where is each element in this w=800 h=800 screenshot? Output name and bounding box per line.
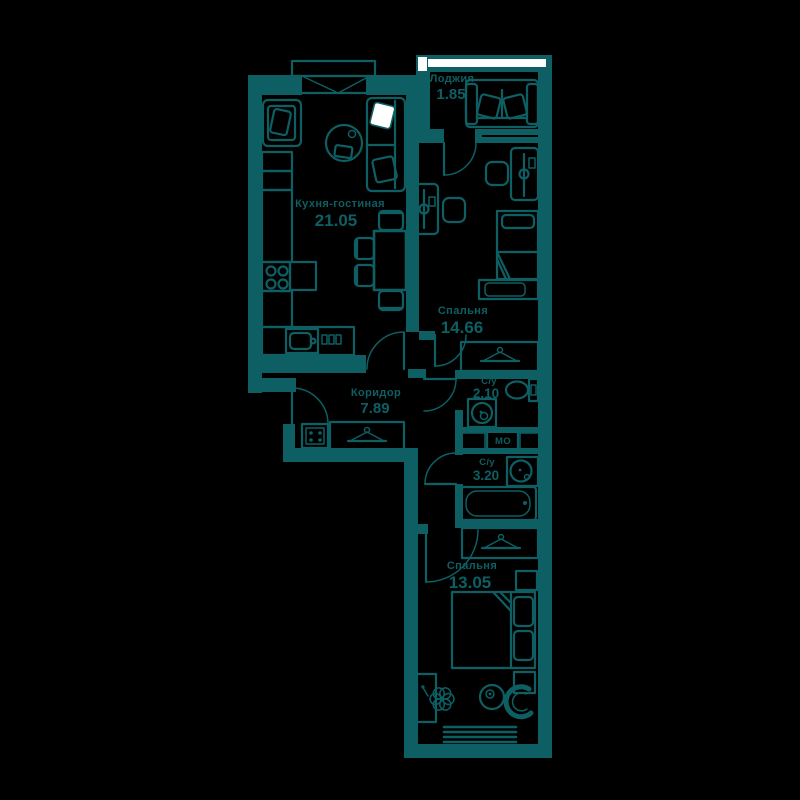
room-label: Спальня (447, 560, 497, 572)
washing-machine-icon (468, 399, 496, 427)
wardrobe-icon (511, 148, 538, 200)
kitchen-window (292, 61, 375, 93)
room-label: Лоджия (430, 73, 475, 85)
coffee-table-icon (326, 125, 362, 161)
chair-icon (486, 162, 508, 185)
washing-niche-label: МО (495, 436, 511, 447)
room-area: 13.05 (449, 573, 492, 592)
armchair-icon (263, 100, 301, 146)
room-area: 14.66 (441, 318, 484, 337)
room-bathroom-1: С/у 2.10 (468, 376, 538, 427)
dining-table-icon (374, 231, 406, 290)
nightstand-icon (516, 571, 537, 590)
room-corridor: Коридор 7.89 (302, 387, 404, 450)
bed-bench-icon (479, 280, 538, 299)
room-area: 21.05 (315, 211, 358, 230)
room-bedroom-2: Спальня 13.05 (417, 528, 538, 742)
fridge-icon (262, 152, 292, 190)
room-label: Кухня-гостиная (295, 198, 385, 210)
room-area: 3.20 (473, 468, 499, 483)
sink-icon (507, 457, 538, 486)
bathroom-1-door (424, 379, 456, 411)
room-kitchen-living: Кухня-гостиная 21.05 (262, 98, 406, 355)
entrance-door (292, 388, 328, 424)
armchair-icon (506, 687, 531, 717)
floor-plan: Лоджия 1.85 (0, 0, 800, 800)
chair-icon (443, 198, 465, 222)
kitchen-door (367, 332, 404, 369)
room-bathroom-2: С/у 3.20 (461, 457, 538, 520)
window-sill-lines (444, 727, 516, 742)
wardrobe-hanger-icon (330, 422, 404, 450)
bathroom-2-door (425, 453, 456, 484)
sofa-icon (466, 80, 538, 127)
wardrobe-hanger-icon (462, 528, 538, 558)
dining-chairs-icon (355, 211, 403, 310)
room-area: 1.85 (436, 86, 465, 103)
room-loggia: Лоджия 1.85 (430, 73, 538, 127)
stove-icon (262, 262, 290, 291)
wardrobe-hanger-icon (461, 342, 538, 371)
shoe-cabinet-icon (302, 424, 328, 448)
sofa-icon (367, 98, 405, 191)
toilet-icon (506, 379, 538, 401)
sink-counter-icon (262, 327, 354, 355)
room-area: 7.89 (360, 400, 389, 417)
side-table-icon (480, 685, 504, 709)
pouf-icon (430, 688, 454, 710)
room-label: С/у (479, 457, 495, 468)
bathtub-icon (461, 487, 536, 520)
walls (248, 55, 552, 758)
balcony-door (444, 143, 476, 175)
room-label: Спальня (438, 305, 488, 317)
room-area: 2.10 (473, 386, 499, 401)
floor-plan-canvas: Лоджия 1.85 (0, 0, 800, 800)
room-label: Коридор (351, 387, 401, 399)
kitchen-counter-icon (262, 190, 316, 327)
bed-icon (497, 211, 538, 279)
tall-wardrobe-icon (417, 674, 436, 722)
bed-icon (452, 592, 535, 668)
